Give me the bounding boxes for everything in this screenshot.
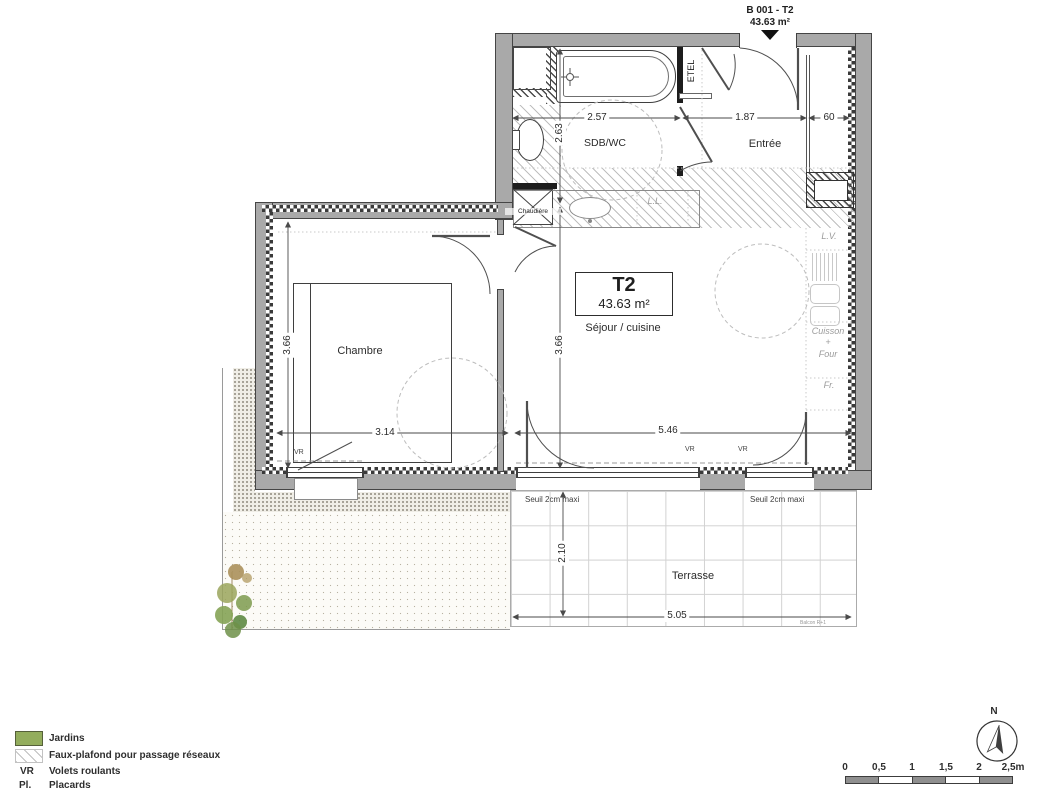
unit-type: T2 [576,274,672,296]
unit-pointer-icon [761,30,779,40]
dim-sejour-depth: 3.66 [554,332,566,357]
etel-door-swing [729,54,735,90]
terrace-door-1-swing [527,401,594,468]
half-wall-wc [513,88,547,97]
unit-summary-box: T2 43.63 m² [575,272,673,316]
compass-needle-light [987,724,999,753]
scale-tick-0: 0 [842,762,848,773]
sink-basin-2 [810,306,840,326]
etel-label: ETEL [685,57,697,86]
unit-area: 43.63 m² [576,296,672,311]
sdb-door-leaf [680,107,712,162]
legend-label-faux-plafond: Faux-plafond pour passage réseaux [49,750,220,761]
room-label-entree: Entrée [749,138,781,150]
north-compass [974,718,1019,763]
scale-tick-1: 1 [909,762,915,773]
dim-sdb-depth: 2.63 [554,120,566,145]
unit-id-label: B 001 - T2 [710,5,830,16]
chaudiere-door-leaf [515,227,556,246]
drainer [812,253,838,281]
scale-tick-15: 1,5 [939,762,953,773]
garden-edge-band-vertical [233,368,255,492]
bathtub-inner [563,56,669,97]
floor-plan-canvas: B 001 - T2 43.63 m² SDB/WC Entrée Chambr… [0,0,1042,800]
scale-tick-2: 2 [976,762,982,773]
legend-swatch-faux-plafond [15,749,43,763]
legend-abbr-pl: Pl. [19,780,31,791]
etel-ledge [679,93,712,99]
dim-terrasse-depth: 2.10 [557,540,569,565]
sejour-window-1 [516,467,700,478]
chaudiere-door-swing [515,246,556,272]
room-label-terrasse: Terrasse [672,570,714,582]
scale-segment [846,777,879,783]
sejour-window-2 [745,467,814,478]
legend-label-vr: Volets roulants [49,766,121,777]
chambre-partition-stub [497,219,504,235]
legend-label-jardins: Jardins [49,733,85,744]
dim-entree-width: 1.87 [732,112,757,124]
room-label-sdb: SDB/WC [584,137,626,149]
scale-segment [913,777,946,783]
insulation-step-wall [262,205,498,212]
etel-door-leaf [702,48,729,90]
scale-segment [946,777,979,783]
insulation-bottom-1 [262,467,286,474]
vr-label-sejour-1: VR [685,446,695,453]
garden-edge-band-horizontal [233,492,510,512]
toilet-tank [512,130,520,150]
vr-label-sejour-2: VR [738,446,748,453]
toilet [516,119,544,161]
scale-tick-05: 0,5 [872,762,886,773]
sink-basin-1 [810,284,840,304]
kitchen-sink [569,197,611,219]
chambre-window-sill [294,478,358,500]
dim-sdb-width: 2.57 [584,112,609,124]
scale-segment [879,777,912,783]
insulation-bottom-2 [364,467,516,474]
insulation-bottom-3 [700,467,745,474]
terrace-door-2-swing [753,412,806,465]
scale-bar [845,776,1013,784]
entrance-door-swing [740,48,798,110]
dim-sejour-width: 5.46 [655,425,680,437]
chambre-partition [497,289,504,472]
insulation-left-wall [266,212,273,468]
insulation-right-wall [848,47,855,467]
vr-label-chambre: VR [294,449,304,456]
seuil-note-left: Seuil 2cm maxi [525,495,579,504]
bed-headboard-line [310,283,311,463]
wall-left-upper [495,33,513,220]
bathtub [556,50,676,103]
legend-swatch-jardins [15,731,43,746]
dim-placard-depth: 60 [820,112,837,124]
sdb-door-post [677,166,683,176]
scale-tick-25: 2,5m [1002,762,1025,773]
cuisson-four-label: Cuisson + Four [812,326,845,360]
wall-right [855,33,872,490]
placard-cabinet-inner [814,180,848,201]
garden-area [222,512,510,630]
chambre-window [286,467,364,478]
lave-vaisselle-label: L.V. [821,231,836,242]
dim-chambre-width: 3.14 [372,427,397,439]
chaudiere-label: Chaudière [505,208,561,215]
seuil-note-right: Seuil 2cm maxi [750,495,804,504]
insulation-bottom-4 [814,467,848,474]
scale-segment [980,777,1012,783]
garden-boundary-line [222,368,223,630]
entree-placard-front [806,55,810,172]
compass-needle-dark [995,725,1007,754]
room-label-chambre: Chambre [337,345,382,357]
unit-area-label: 43.63 m² [710,17,830,28]
room-label-sejour: Séjour / cuisine [585,322,660,334]
balcon-note: Balcon R+1 [800,620,826,626]
legend-abbr-vr: VR [20,766,34,777]
frigo-label: Fr. [824,380,835,391]
compass-north-label: N [988,706,999,717]
dim-chambre-depth: 3.66 [282,332,294,357]
wall-top [495,33,872,47]
lave-linge-label: L.L. [647,196,662,207]
placard-cabinet [806,172,854,208]
dim-terrasse-width: 5.05 [664,610,689,622]
legend-label-pl: Placards [49,780,91,791]
